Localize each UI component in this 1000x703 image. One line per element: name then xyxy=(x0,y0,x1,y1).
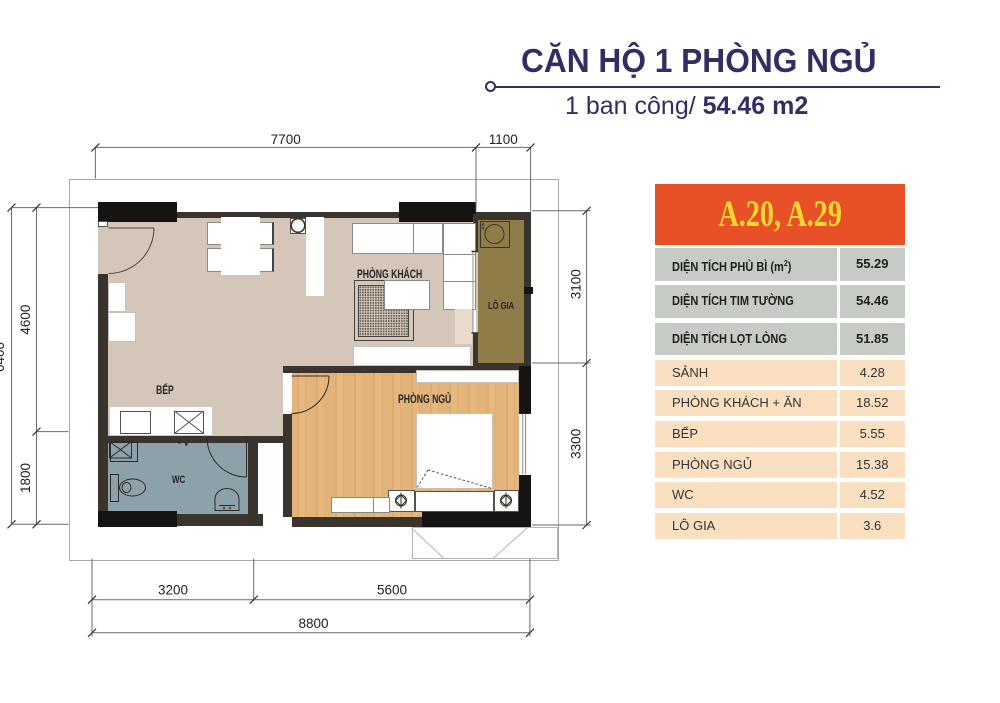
svg-text:3200: 3200 xyxy=(158,583,188,598)
svg-text:8800: 8800 xyxy=(298,616,328,631)
svg-text:3300: 3300 xyxy=(569,429,584,459)
svg-text:1100: 1100 xyxy=(489,132,518,147)
svg-text:4600: 4600 xyxy=(18,305,33,335)
svg-text:5600: 5600 xyxy=(377,583,407,598)
svg-text:7700: 7700 xyxy=(271,132,301,147)
svg-text:6400: 6400 xyxy=(0,342,7,372)
svg-text:3100: 3100 xyxy=(569,269,584,299)
svg-text:1800: 1800 xyxy=(18,463,33,493)
